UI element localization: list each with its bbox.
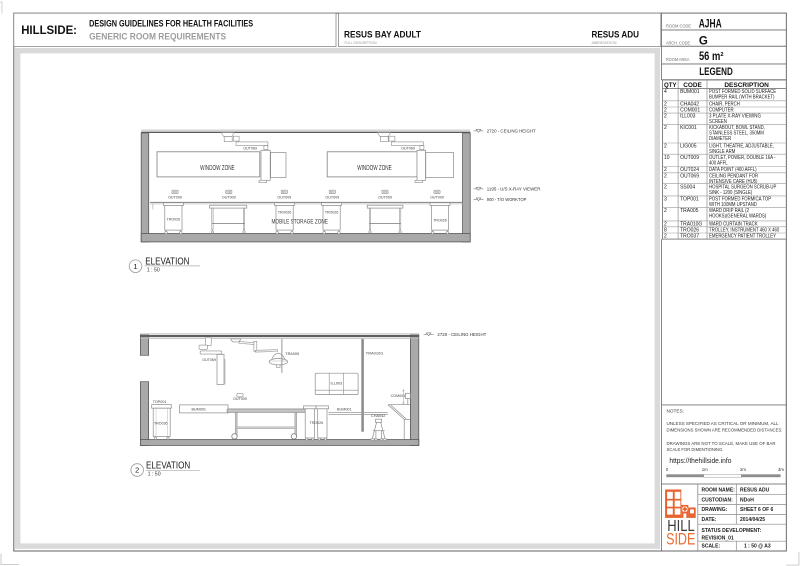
svg-text:TRO026: TRO026 [433, 219, 447, 223]
svg-text:10: 10 [664, 155, 670, 161]
svg-text:OUT069: OUT069 [243, 146, 257, 151]
svg-text:WINDOW ZONE: WINDOW ZONE [357, 165, 392, 172]
svg-text:DATA POINT (400 AFFL): DATA POINT (400 AFFL) [709, 167, 757, 173]
svg-text:LIG005: LIG005 [680, 144, 697, 150]
svg-text:2: 2 [664, 114, 667, 120]
svg-text:OUT009: OUT009 [222, 195, 236, 200]
svg-text:OUT009: OUT009 [325, 195, 339, 200]
svg-text:SINK - 1200 (SINGLE): SINK - 1200 (SINGLE) [709, 190, 753, 196]
svg-text:G: G [699, 36, 708, 48]
svg-text:CODE: CODE [683, 82, 702, 89]
svg-text:DIAMETER: DIAMETER [709, 136, 732, 142]
svg-text:TOP001: TOP001 [680, 197, 699, 203]
svg-text:OUT009: OUT009 [430, 195, 444, 200]
svg-text:4: 4 [664, 89, 667, 95]
svg-text:2720 - CEILING HEIGHT: 2720 - CEILING HEIGHT [437, 332, 486, 338]
svg-text:TRO026: TRO026 [680, 227, 699, 233]
svg-text:EMERGENCY PATIENT TROLLEY: EMERGENCY PATIENT TROLLEY [709, 234, 777, 240]
svg-text:https://thehillside.info: https://thehillside.info [669, 456, 731, 465]
svg-text:ROOM AREA: ROOM AREA [666, 57, 690, 62]
svg-text:DESCRIPTION: DESCRIPTION [724, 82, 769, 89]
svg-text:NDoH: NDoH [740, 497, 754, 503]
svg-text:TRA010G: TRA010G [366, 350, 384, 355]
svg-text:8: 8 [664, 227, 667, 233]
svg-text:ARCH. CODE: ARCH. CODE [666, 41, 690, 46]
svg-text:COMPUTER: COMPUTER [709, 108, 734, 114]
svg-text:OUT009: OUT009 [680, 155, 699, 161]
svg-text:HOOKS)(GENERAL WARDS): HOOKS)(GENERAL WARDS) [709, 213, 767, 219]
svg-text:DRAWINGS ARE NOT TO SCALE, MAK: DRAWINGS ARE NOT TO SCALE, MAKE USE OF B… [667, 441, 777, 446]
svg-text:STATUS DEVELOPMENT:: STATUS DEVELOPMENT: [702, 528, 762, 534]
svg-text:CHAIR, PERCH: CHAIR, PERCH [709, 101, 740, 107]
svg-text:COM001: COM001 [680, 108, 700, 114]
svg-text:WINDOW ZONE: WINDOW ZONE [200, 165, 235, 172]
svg-text:2: 2 [664, 144, 667, 150]
svg-text:2: 2 [664, 234, 667, 240]
svg-text:2: 2 [664, 208, 667, 214]
svg-text:ROOM CODE: ROOM CODE [666, 24, 691, 29]
svg-text:DRAWING:: DRAWING: [702, 507, 728, 513]
svg-text:TRA005: TRA005 [285, 351, 299, 356]
svg-text:1 : 50: 1 : 50 [147, 267, 160, 273]
svg-text:2: 2 [135, 466, 139, 475]
svg-text:900 - T/O WORKTOP: 900 - T/O WORKTOP [487, 197, 527, 203]
svg-text:ABBREVIATION: ABBREVIATION [592, 41, 617, 45]
svg-text:NOTES:: NOTES: [667, 409, 684, 414]
svg-text:1 : 50 @ A3: 1 : 50 @ A3 [744, 544, 771, 550]
svg-text:2: 2 [664, 173, 667, 179]
svg-text:TOP001: TOP001 [153, 399, 167, 404]
svg-text:LEGEND: LEGEND [699, 66, 733, 78]
svg-text:RESUS ADU: RESUS ADU [740, 487, 770, 493]
svg-text:FULL DESCRIPTION: FULL DESCRIPTION [345, 41, 377, 45]
svg-text:400 AFFL: 400 AFFL [709, 160, 728, 166]
svg-text:3: 3 [664, 197, 667, 203]
svg-text:2: 2 [664, 184, 667, 190]
svg-text:2: 2 [664, 108, 667, 114]
svg-text:SCALE:: SCALE: [702, 544, 721, 550]
svg-text:CHA042: CHA042 [680, 101, 699, 107]
svg-text:1m: 1m [702, 467, 708, 472]
svg-text:TRO026: TRO026 [154, 422, 168, 426]
svg-text:UNLESS SPECIFIED AS CRITICAL O: UNLESS SPECIFIED AS CRITICAL OR MINIMUM,… [667, 421, 779, 426]
svg-text:ILL003: ILL003 [331, 380, 343, 385]
svg-text:OUT069: OUT069 [680, 173, 699, 179]
svg-text:OUT009: OUT009 [168, 195, 182, 200]
svg-text:RESUS ADU: RESUS ADU [592, 30, 640, 40]
svg-text:1: 1 [133, 262, 137, 271]
svg-text:MOBILE STORAGE ZONE: MOBILE STORAGE ZONE [272, 219, 328, 226]
svg-text:AJHA: AJHA [699, 18, 722, 30]
svg-text:2: 2 [664, 125, 667, 131]
svg-text:56 m²: 56 m² [699, 51, 724, 63]
svg-text:SS004: SS004 [680, 184, 695, 190]
svg-text:TRO026: TRO026 [167, 218, 181, 222]
svg-text:OUT009: OUT009 [233, 396, 247, 401]
svg-text:DIMENSIONS SHOWN ARE RECOMMEND: DIMENSIONS SHOWN ARE RECOMMENDED DISTANC… [667, 427, 783, 432]
svg-text:CHA042: CHA042 [371, 413, 386, 418]
svg-text:OUT009: OUT009 [277, 195, 291, 200]
svg-text:2: 2 [664, 167, 667, 173]
svg-text:DESIGN GUIDELINES FOR HEALTH F: DESIGN GUIDELINES FOR HEALTH FACILITIES [89, 18, 253, 28]
svg-text:BUM001: BUM001 [191, 406, 206, 411]
svg-text:TRA005: TRA005 [680, 208, 699, 214]
svg-text:REVISION_01: REVISION_01 [702, 536, 734, 542]
svg-text:ILL003: ILL003 [680, 114, 696, 120]
svg-text:COM001: COM001 [391, 393, 406, 398]
svg-text:ROOM NAME:: ROOM NAME: [702, 487, 736, 493]
svg-text:OUT069: OUT069 [401, 146, 415, 151]
svg-text:GENERIC ROOM REQUIREMENTS: GENERIC ROOM REQUIREMENTS [89, 31, 226, 41]
svg-text:CUSTODIAN:: CUSTODIAN: [702, 497, 734, 503]
svg-text:QTY: QTY [664, 82, 677, 89]
svg-text:BUM001: BUM001 [680, 89, 700, 95]
svg-text:OUT009: OUT009 [378, 195, 392, 200]
svg-text:2m: 2m [740, 467, 746, 472]
svg-text:1195 - U/S X-RAY VIEWER: 1195 - U/S X-RAY VIEWER [487, 187, 541, 193]
svg-text:BUMPER RAIL (WITH BRACKET): BUMPER RAIL (WITH BRACKET) [709, 95, 775, 101]
svg-text:OUT069: OUT069 [202, 357, 216, 362]
svg-text:KIC001: KIC001 [680, 125, 697, 131]
svg-text:3m: 3m [778, 467, 784, 472]
svg-text:2720 - CEILING HEIGHT: 2720 - CEILING HEIGHT [487, 129, 536, 135]
svg-text:SCALE FOR DIMENTIONING.: SCALE FOR DIMENTIONING. [667, 447, 724, 452]
svg-text:2014/04/25: 2014/04/25 [740, 517, 765, 523]
svg-text:TROLLEY, INSTRUMENT 460 X 460: TROLLEY, INSTRUMENT 460 X 460 [709, 227, 779, 233]
svg-text:TRO026: TRO026 [310, 421, 324, 425]
svg-text:TRO026: TRO026 [278, 210, 292, 214]
svg-text:TRO026: TRO026 [325, 210, 339, 214]
svg-text:2: 2 [664, 101, 667, 107]
svg-text:BUM001: BUM001 [337, 406, 352, 411]
svg-text:OUT024: OUT024 [680, 167, 699, 173]
svg-text:SIDE: SIDE [666, 529, 695, 548]
svg-text:1 : 50: 1 : 50 [148, 472, 161, 478]
svg-text:SHEET 6 OF 6: SHEET 6 OF 6 [740, 507, 774, 513]
svg-text:RESUS BAY ADULT: RESUS BAY ADULT [344, 30, 421, 40]
svg-text:DATE:: DATE: [702, 517, 717, 523]
svg-text:TRO037: TRO037 [680, 234, 699, 240]
svg-text:HILLSIDE:: HILLSIDE: [21, 23, 77, 37]
